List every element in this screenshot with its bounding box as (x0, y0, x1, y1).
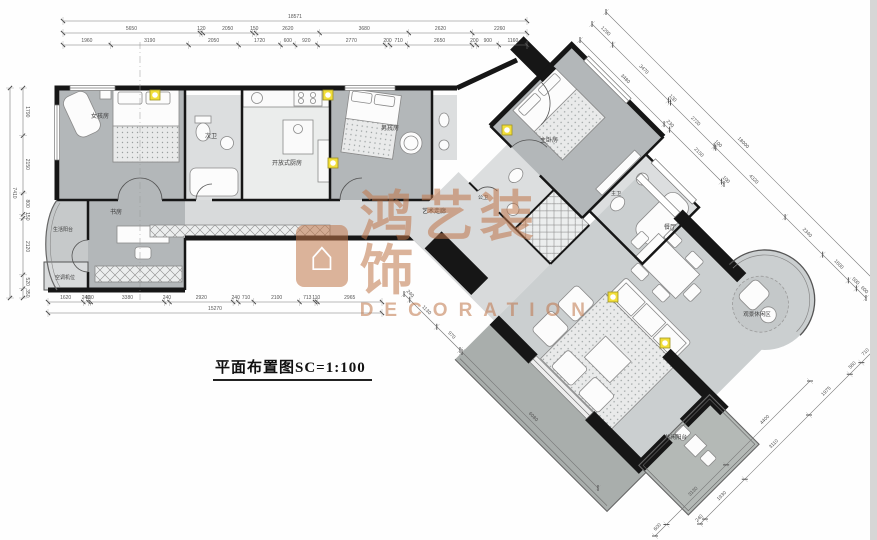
bookshelf (95, 266, 182, 282)
sink (221, 137, 234, 150)
dim-label: 240 (694, 513, 704, 523)
dim-label: 3380 (122, 295, 133, 301)
room-label-bedroom-girl: 女孩房 (91, 112, 109, 120)
dim-label: 2260 (494, 26, 505, 32)
ceiling-light-marker (608, 292, 618, 302)
dim-label: 2340 (801, 227, 813, 239)
ceiling-light-marker (323, 90, 333, 100)
dim-label: 2965 (344, 295, 355, 301)
blanket (113, 126, 179, 162)
dim-label: 2650 (434, 38, 445, 44)
screen-edge-strip (870, 0, 877, 540)
dim-label: 600 (284, 38, 293, 44)
dim-chain-bottom-parts: 1620240100338024029202407102100713110296… (46, 295, 384, 306)
dim-label: 920 (302, 38, 311, 44)
dim-label: 1930 (716, 490, 728, 502)
sink (439, 140, 449, 150)
island-sink (294, 125, 303, 134)
dim-label: 3470 (637, 64, 649, 76)
toilet (439, 113, 449, 127)
dim-label: 2720 (689, 115, 701, 127)
dim-label: 3190 (144, 38, 155, 44)
dim-label: 240 (163, 295, 172, 301)
dim-label: 2100 (271, 295, 282, 301)
dim-label: 2620 (282, 26, 293, 32)
dim-label: 3680 (359, 26, 370, 32)
room-label-corridor: 艺术走廊 (422, 207, 446, 215)
dim-label: 1290 (599, 25, 611, 37)
room-label-kitchen: 开放式厨房 (272, 159, 302, 167)
dim-label: 2150 (693, 147, 705, 159)
dim-chain-top-row2: 565012020501502620368026202260 (61, 26, 529, 37)
room-label-bay-lounge: 观景休闲区 (743, 310, 771, 318)
dim-label: 18571 (288, 14, 302, 20)
dim-label: 4320 (747, 173, 759, 185)
dim-label: 1130 (420, 304, 432, 316)
pillow (118, 92, 142, 104)
dim-chain-top-row3: 1960319020501720600920277020071026502009… (61, 38, 529, 49)
ceiling-light-marker (660, 338, 670, 348)
dim-label: 1790 (24, 106, 30, 117)
dim-label: 560 (848, 360, 858, 370)
dim-label: 110 (312, 295, 320, 301)
ceiling-light-marker (150, 90, 160, 100)
dim-label: 240 (405, 289, 415, 299)
bathtub (190, 168, 238, 196)
room-label-master-bath: 主卫 (611, 190, 621, 197)
dim-label: 2120 (24, 241, 30, 252)
dim-label: 500 (850, 276, 860, 286)
dim-label: 1975 (820, 385, 832, 397)
dim-label: 120 (197, 26, 206, 32)
dim-chain-top-total: 18571 (61, 14, 529, 25)
dim-label: 2050 (222, 26, 233, 32)
blanket (341, 118, 397, 159)
dim-label: 970 (446, 330, 456, 340)
room-label-balcony-service: 生活阳台 (53, 226, 73, 233)
floor-plan-page: 女孩房 次卫 开放式厨房 男孩房 书房 生活阳台 空调机位 艺术走廊 公卫 主卧… (0, 0, 877, 540)
stove (294, 90, 322, 106)
room-label-ac-unit: 空调机位 (55, 274, 75, 281)
dim-label: 7410 (11, 187, 17, 198)
round-chair (400, 132, 422, 154)
ceiling-light-marker (502, 125, 512, 135)
dim-label: 1620 (60, 295, 71, 301)
dim-label: 240 (232, 295, 241, 301)
dim-label: 350 (24, 289, 30, 298)
dim-label: 100 (721, 175, 731, 185)
dim-label: 710 (394, 38, 403, 44)
room-label-bedroom-boy: 男孩房 (381, 124, 399, 132)
dim-label: 200 (383, 38, 392, 44)
dim-label: 1160 (507, 38, 518, 44)
toilet-tank (195, 116, 211, 123)
dim-label: 2050 (208, 38, 219, 44)
dim-label: 100 (85, 295, 94, 301)
dim-label: 713 (303, 295, 312, 301)
dim-label: 1600 (832, 258, 844, 270)
dim-label: 5650 (126, 26, 137, 32)
plan-title: 平面布置图SC=1:100 (213, 356, 372, 381)
kitchen-sink (252, 93, 263, 104)
chair (135, 247, 151, 259)
dim-label: 600 (859, 285, 869, 295)
dim-label: 900 (484, 38, 493, 44)
dim-chain-left-parts: 179021508001502120520350 (19, 86, 30, 300)
dim-label: 520 (24, 278, 30, 287)
room-label-bath-second: 次卫 (205, 132, 217, 140)
dim-label: 1720 (254, 38, 265, 44)
dim-label: 130 (667, 93, 677, 103)
dim-mark (404, 294, 460, 350)
dim-label: 230 (665, 119, 675, 129)
dim-label: 18000 (736, 136, 750, 150)
dim-label: 15270 (208, 306, 222, 312)
dim-label: 4400 (759, 414, 771, 426)
dim-label: 2770 (346, 38, 357, 44)
ceiling-light-marker (328, 158, 338, 168)
dim-label: 800 (24, 199, 30, 208)
dim-chain-left-total: 7410 (6, 86, 17, 300)
room-label-bath-guest: 公卫 (478, 195, 488, 201)
floor-plan-drawing: 女孩房 次卫 开放式厨房 男孩房 书房 生活阳台 空调机位 艺术走廊 公卫 主卧… (0, 0, 877, 540)
dim-label: 600 (653, 522, 663, 532)
dim-label: 150 (24, 212, 30, 221)
dim-chain-bottom-total: 15270 (46, 306, 384, 317)
dim-label: 2620 (435, 26, 446, 32)
room-label-balcony-leisure: 休闲阳台 (665, 433, 688, 441)
room-label-master-bedroom: 主卧房 (540, 136, 558, 144)
room-label-study: 书房 (110, 208, 122, 216)
dim-label: 150 (250, 26, 259, 32)
dim-label: 2150 (24, 159, 30, 170)
dim-label: 200 (470, 38, 479, 44)
corridor-wardrobe (150, 225, 330, 237)
dim-label: 710 (242, 295, 251, 301)
dim-label: 1960 (81, 38, 92, 44)
room-label-dining: 餐厅 (664, 223, 676, 231)
dim-label: 3110 (768, 438, 780, 450)
dim-label: 2920 (196, 295, 207, 301)
dim-chain-sw-small: 2401130970 (401, 289, 463, 353)
dim-label: 3480 (619, 73, 631, 85)
